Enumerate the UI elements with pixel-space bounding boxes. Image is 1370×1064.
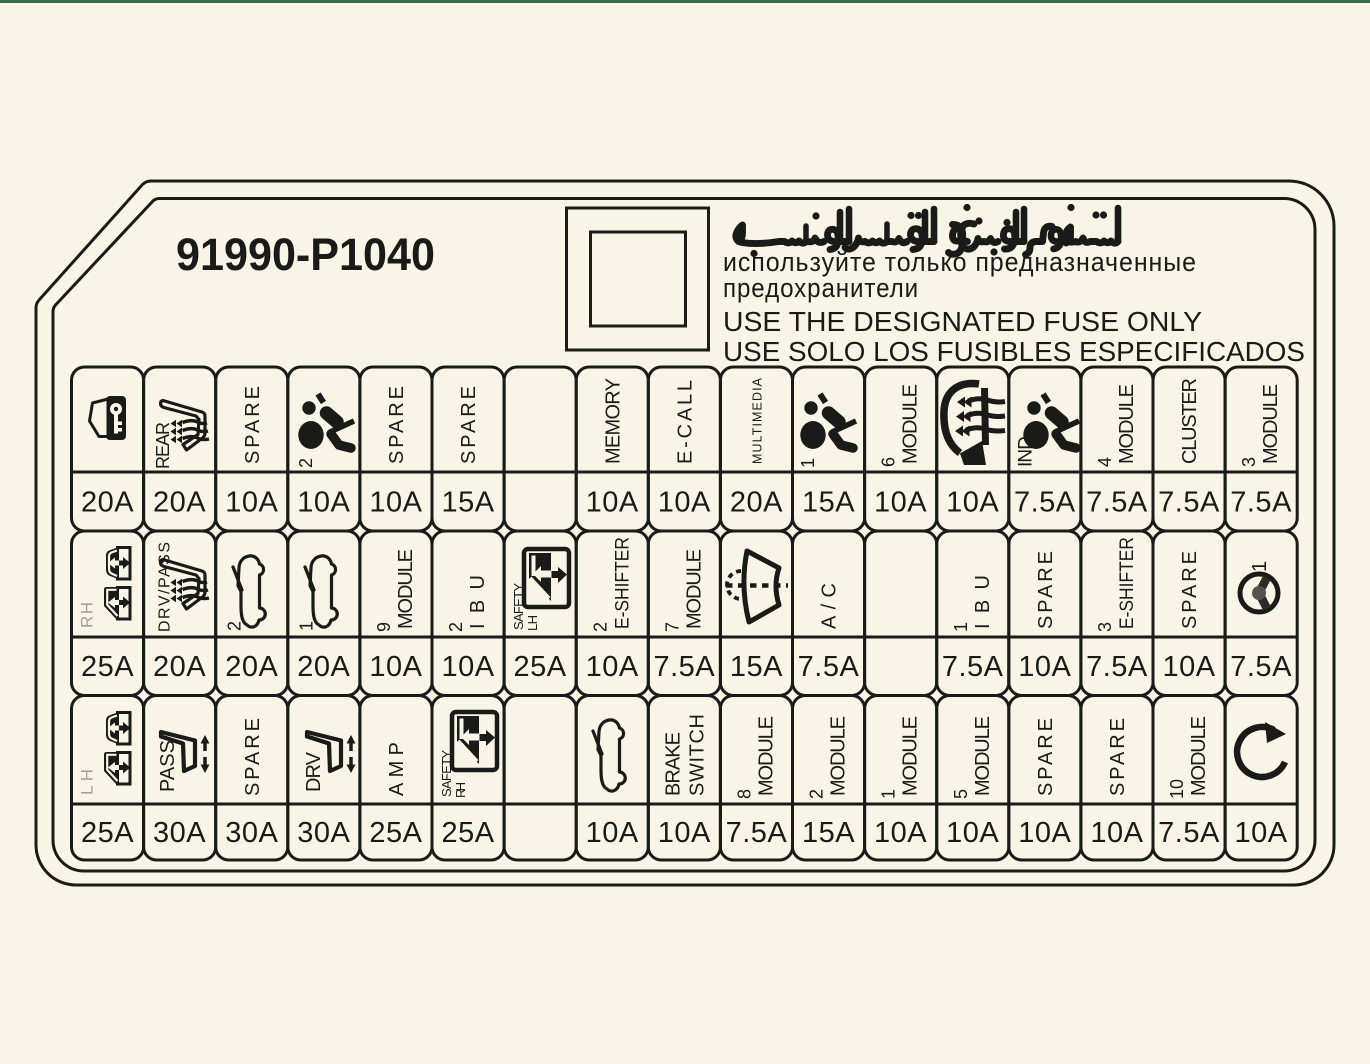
svg-text:20A: 20A [153,651,206,683]
svg-text:7.5A: 7.5A [942,651,1004,683]
svg-text:PASS: PASS [157,740,179,792]
svg-text:30A: 30A [225,817,278,849]
svg-text:30A: 30A [297,817,350,849]
svg-text:USE THE DESIGNATED FUSE ONLY: USE THE DESIGNATED FUSE ONLY [723,306,1202,337]
svg-text:10: 10 [1167,779,1187,799]
svg-text:10A: 10A [1162,651,1215,683]
svg-text:10A: 10A [946,487,999,519]
svg-text:SAFETY: SAFETY [511,583,526,630]
svg-text:15A: 15A [730,651,783,683]
svg-text:7.5A: 7.5A [1230,487,1292,519]
svg-text:7.5A: 7.5A [798,651,860,683]
svg-text:20A: 20A [81,487,134,519]
svg-text:BRAKE: BRAKE [662,732,684,796]
svg-text:25A: 25A [441,817,494,849]
svg-text:15A: 15A [441,487,494,519]
svg-text:MODULE: MODULE [755,716,777,796]
svg-text:MODULE: MODULE [1188,716,1210,796]
svg-text:предохранители: предохранители [723,273,919,303]
svg-text:SWITCH: SWITCH [686,714,708,796]
svg-text:10A: 10A [586,487,639,519]
svg-text:MEMORY: MEMORY [602,378,624,464]
svg-text:5: 5 [951,789,971,799]
svg-text:2: 2 [807,789,827,799]
svg-text:25A: 25A [81,651,134,683]
svg-text:10A: 10A [225,487,278,519]
svg-text:SPARE: SPARE [1035,551,1057,629]
svg-text:MODULE: MODULE [1260,384,1282,464]
svg-text:10A: 10A [1018,817,1071,849]
svg-text:4: 4 [1095,457,1115,467]
svg-text:MODULE: MODULE [1116,384,1138,464]
svg-text:7.5A: 7.5A [1230,651,1292,683]
svg-text:20A: 20A [153,487,206,519]
svg-text:USE SOLO LOS FUSIBLES ESPECIFI: USE SOLO LOS FUSIBLES ESPECIFICADOS [723,336,1305,367]
svg-text:1: 1 [798,458,818,468]
svg-text:10A: 10A [1018,651,1071,683]
svg-text:3: 3 [1239,457,1259,467]
svg-text:7: 7 [662,622,682,632]
svg-text:MODULE: MODULE [900,716,922,796]
svg-text:8: 8 [734,789,754,799]
svg-text:7.5A: 7.5A [726,817,788,849]
svg-text:SPARE: SPARE [458,386,480,464]
svg-text:IND: IND [1016,436,1037,467]
svg-text:7.5A: 7.5A [1086,487,1148,519]
svg-text:25A: 25A [514,651,567,683]
svg-text:SPARE: SPARE [386,386,408,464]
svg-text:SPARE: SPARE [1179,551,1201,629]
svg-text:10A: 10A [658,817,711,849]
svg-text:MODULE: MODULE [683,549,705,629]
svg-text:MODULE: MODULE [900,384,922,464]
svg-text:6: 6 [879,457,899,467]
svg-text:3: 3 [1095,622,1115,632]
svg-text:7.5A: 7.5A [653,651,715,683]
svg-text:91990-P1040: 91990-P1040 [176,229,435,280]
svg-text:2: 2 [446,622,466,632]
svg-text:AMP: AMP [386,742,408,796]
svg-text:SAFETY: SAFETY [439,750,454,797]
svg-text:SPARE: SPARE [242,718,264,796]
svg-text:10A: 10A [874,487,927,519]
svg-text:SPARE: SPARE [1107,718,1129,796]
svg-text:10A: 10A [874,817,927,849]
svg-text:20A: 20A [297,651,350,683]
svg-text:10A: 10A [441,651,494,683]
svg-text:10A: 10A [369,487,422,519]
svg-text:25A: 25A [369,817,422,849]
svg-text:1: 1 [1249,561,1271,572]
svg-text:20A: 20A [225,651,278,683]
svg-text:A/C: A/C [819,583,841,629]
svg-text:10A: 10A [1090,817,1143,849]
svg-text:RH: RH [453,782,468,798]
svg-text:REAR: REAR [153,422,173,469]
svg-text:1: 1 [951,622,971,632]
svg-text:10A: 10A [946,817,999,849]
svg-text:2: 2 [590,622,610,632]
svg-text:10A: 10A [586,817,639,849]
svg-text:25A: 25A [81,817,134,849]
svg-text:15A: 15A [802,817,855,849]
svg-text:DRV: DRV [303,751,325,792]
svg-text:10A: 10A [369,651,422,683]
svg-text:MODULE: MODULE [828,716,850,796]
svg-text:1: 1 [879,789,899,799]
svg-text:MULTIMEDIA: MULTIMEDIA [750,377,764,464]
svg-text:LH: LH [78,769,97,795]
svg-text:10A: 10A [297,487,350,519]
svg-text:2: 2 [225,621,245,631]
svg-text:20A: 20A [730,487,783,519]
svg-text:MODULE: MODULE [972,716,994,796]
svg-text:7.5A: 7.5A [1158,817,1220,849]
svg-text:10A: 10A [1235,817,1288,849]
svg-text:LH: LH [525,615,540,631]
svg-text:RH: RH [78,602,97,628]
svg-text:SPARE: SPARE [242,386,264,464]
svg-text:1: 1 [297,621,317,631]
svg-text:30A: 30A [153,817,206,849]
svg-text:CLUSTER: CLUSTER [1179,378,1201,464]
svg-text:10A: 10A [658,487,711,519]
svg-text:7.5A: 7.5A [1086,651,1148,683]
svg-text:E-SHIFTER: E-SHIFTER [612,537,633,629]
svg-text:MODULE: MODULE [395,549,417,629]
svg-text:DRV/PASS: DRV/PASS [157,542,174,632]
svg-text:SPARE: SPARE [1035,718,1057,796]
svg-text:9: 9 [374,622,394,632]
svg-text:7.5A: 7.5A [1158,487,1220,519]
svg-text:15A: 15A [802,487,855,519]
svg-text:E-SHIFTER: E-SHIFTER [1117,537,1138,629]
svg-text:10A: 10A [586,651,639,683]
svg-text:7.5A: 7.5A [1014,487,1076,519]
svg-text:2: 2 [296,458,316,468]
